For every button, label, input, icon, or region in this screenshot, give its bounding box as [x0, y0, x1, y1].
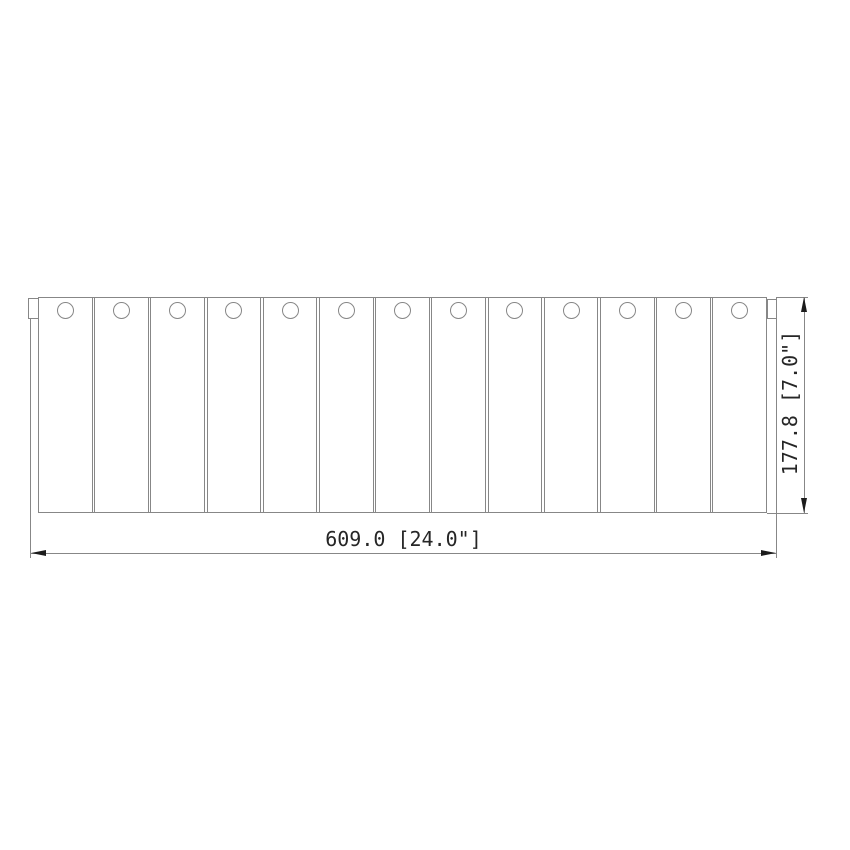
slat	[94, 298, 149, 512]
slat	[375, 298, 430, 512]
arrow-right-icon	[761, 550, 776, 556]
slat	[600, 298, 655, 512]
arrow-down-icon	[801, 498, 807, 513]
slat	[263, 298, 318, 512]
arrow-up-icon	[801, 297, 807, 312]
mounting-hole-icon	[113, 302, 130, 319]
mounting-hole-icon	[563, 302, 580, 319]
mounting-hole-icon	[394, 302, 411, 319]
mounting-hole-icon	[225, 302, 242, 319]
panel-front-view	[38, 297, 767, 513]
width-dimension-label: 609.0 [24.0"]	[31, 528, 776, 550]
slat	[488, 298, 543, 512]
mounting-hole-icon	[506, 302, 523, 319]
drawing-canvas: 609.0 [24.0"] 177.8 [7.0"]	[0, 0, 850, 850]
mounting-hole-icon	[338, 302, 355, 319]
slat	[656, 298, 711, 512]
slat	[207, 298, 262, 512]
arrow-left-icon	[31, 550, 46, 556]
height-extension-line-bottom	[767, 513, 808, 514]
slat	[712, 298, 767, 512]
mounting-hole-icon	[731, 302, 748, 319]
slat	[150, 298, 205, 512]
height-dimension-line	[804, 297, 805, 514]
slat	[319, 298, 374, 512]
mounting-hole-icon	[450, 302, 467, 319]
width-dimension-line	[31, 553, 776, 554]
slat	[38, 298, 93, 512]
height-dimension-label: 177.8 [7.0"]	[779, 313, 801, 493]
mounting-hole-icon	[675, 302, 692, 319]
mounting-hole-icon	[282, 302, 299, 319]
mounting-hole-icon	[619, 302, 636, 319]
width-extension-line-right	[776, 297, 777, 558]
slat	[544, 298, 599, 512]
slat-row	[38, 298, 767, 512]
width-extension-line-left	[30, 318, 31, 558]
slat	[431, 298, 486, 512]
mounting-hole-icon	[169, 302, 186, 319]
mounting-hole-icon	[57, 302, 74, 319]
left-end-tab	[28, 298, 39, 319]
